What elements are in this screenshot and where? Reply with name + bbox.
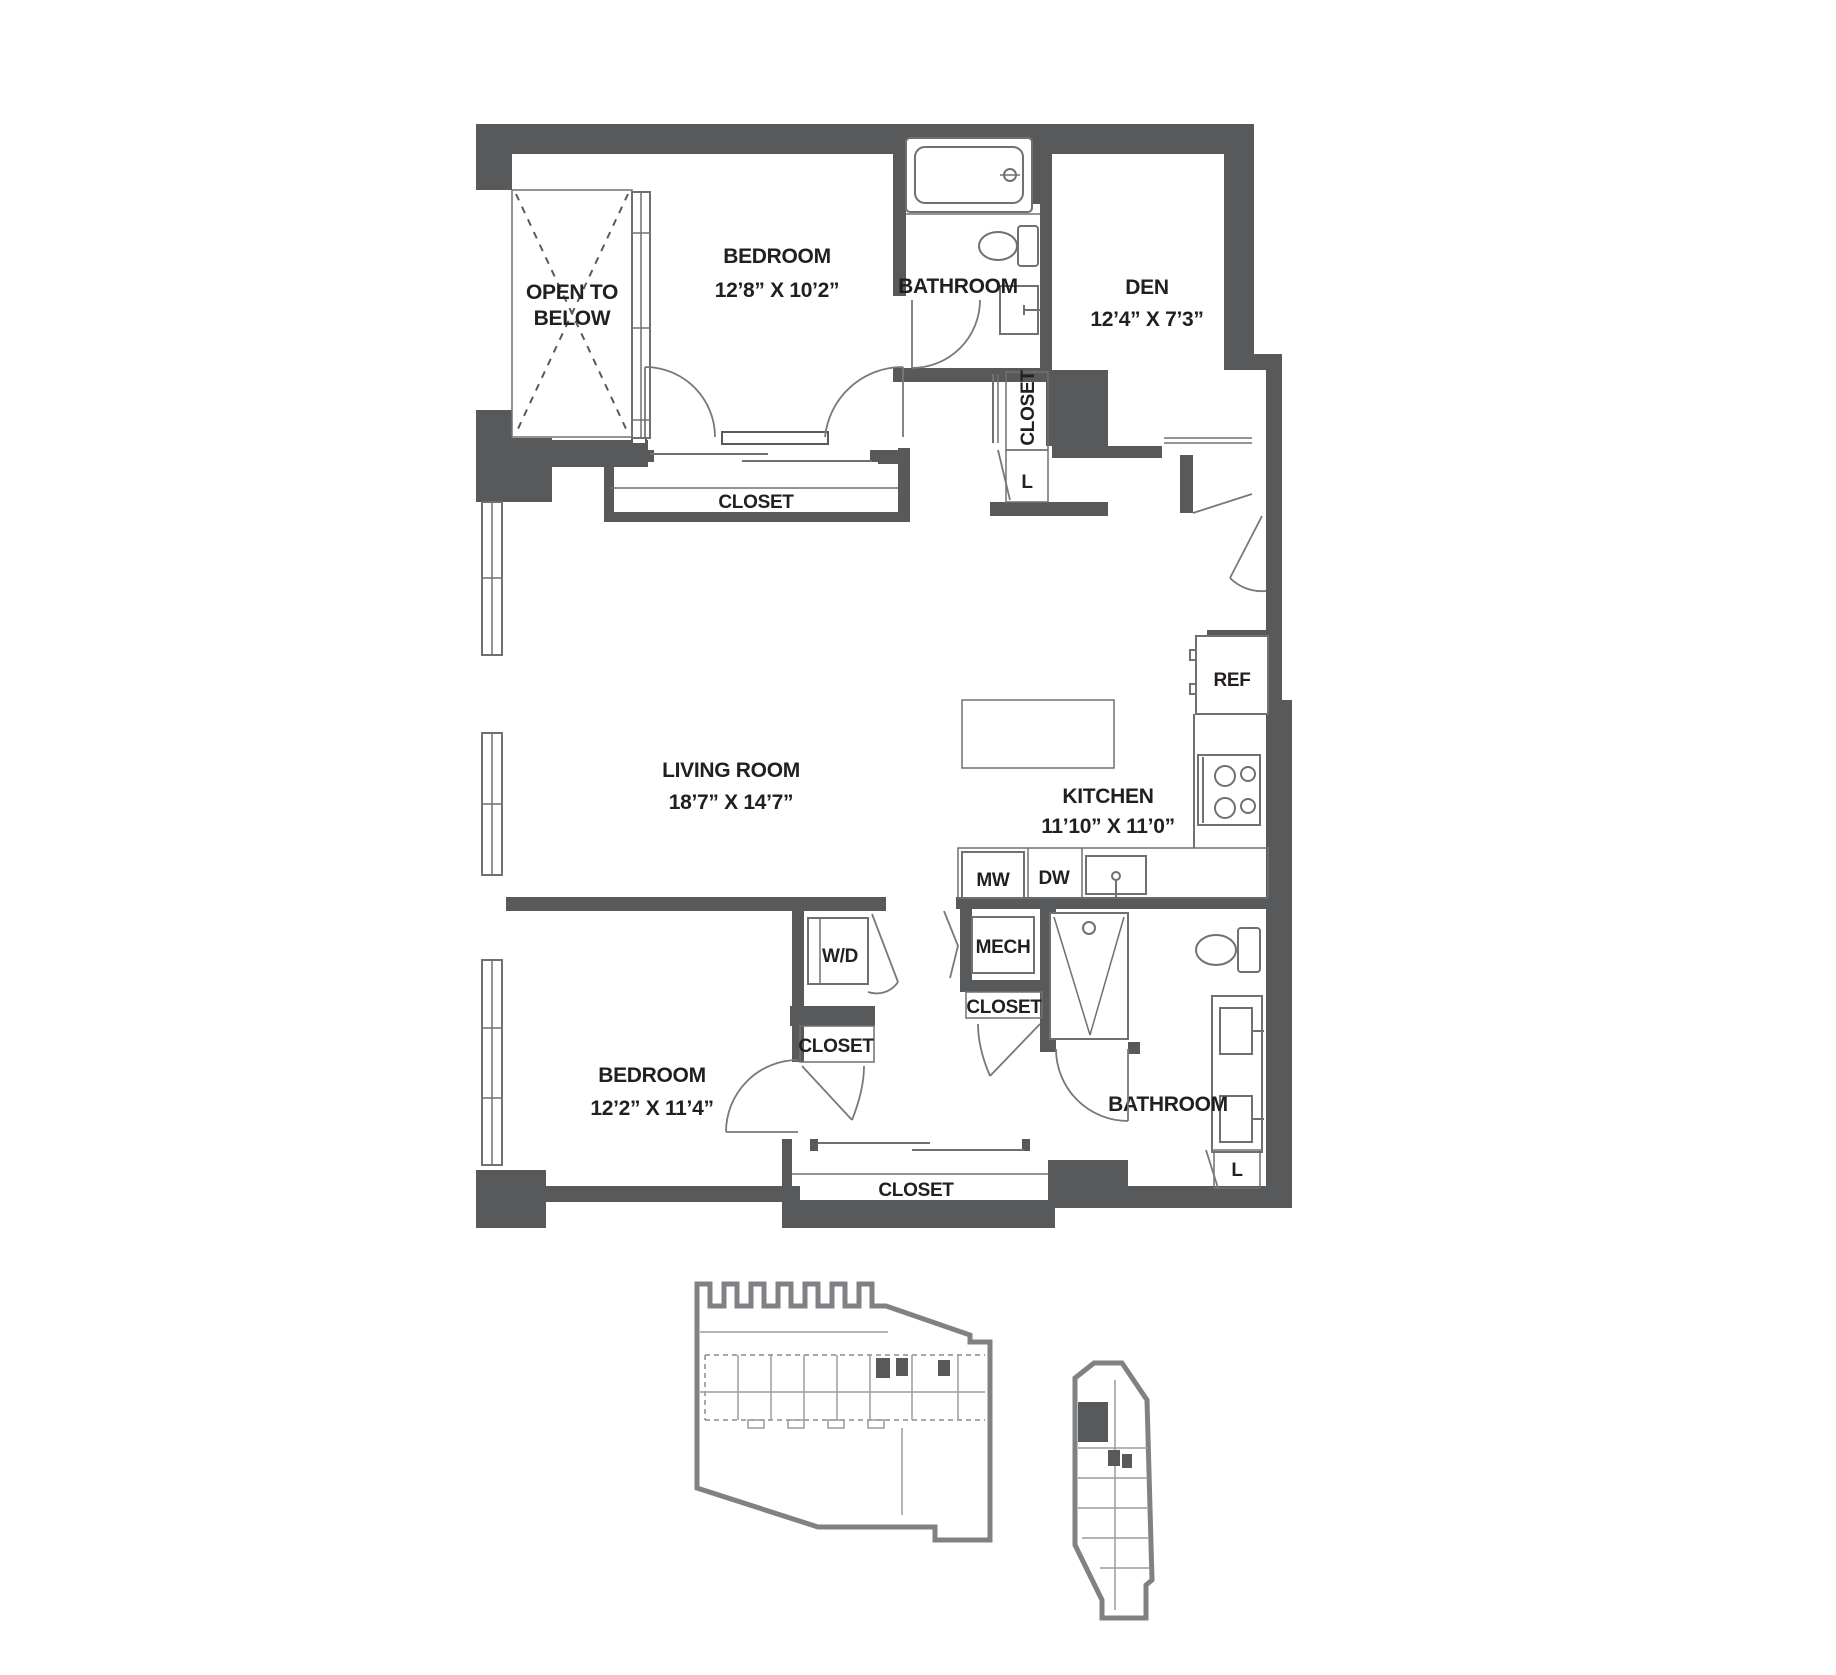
mech-closet: MECH <box>944 911 1034 978</box>
unit-plan: OPEN TO BELOW BEDROOM 12’8” X 10’2” CLOS… <box>476 124 1292 1228</box>
unit-highlight <box>1078 1402 1108 1442</box>
closet-by-mech: CLOSET <box>966 992 1042 1076</box>
kitchen-island <box>962 700 1114 768</box>
bedroom-1-dims: 12’8” X 10’2” <box>715 279 840 302</box>
toilet-2-icon <box>1196 928 1260 972</box>
bathroom-1-label: BATHROOM <box>898 275 1018 298</box>
key-plan-tower <box>1075 1363 1152 1618</box>
microwave-icon: MW <box>962 852 1024 898</box>
bedroom-1-label: BEDROOM <box>723 245 831 268</box>
closet-by-wd: CLOSET <box>798 1026 874 1120</box>
living-room: LIVING ROOM 18’7” X 14’7” <box>662 759 800 814</box>
mw-label: MW <box>976 870 1010 891</box>
vanity-2-icon <box>1212 996 1264 1152</box>
kitchen-dims: 11’10” X 11’0” <box>1041 815 1175 838</box>
living-room-dims: 18’7” X 14’7” <box>669 791 794 814</box>
dw-label: DW <box>1038 868 1069 889</box>
linen-2-label: L <box>1231 1160 1243 1181</box>
bathroom-2-label: BATHROOM <box>1108 1093 1228 1116</box>
open-to-below-label-line2: BELOW <box>534 307 611 330</box>
den-label: DEN <box>1125 276 1168 299</box>
kitchen-label: KITCHEN <box>1062 785 1153 808</box>
bedroom-2-dims: 12’2” X 11’4” <box>590 1097 713 1120</box>
wd-label: W/D <box>822 946 858 967</box>
open-to-below-label-line1: OPEN TO <box>526 281 618 304</box>
closet-bedroom-2-label: CLOSET <box>878 1180 954 1201</box>
bedroom-2: BEDROOM 12’2” X 11’4” <box>590 1060 798 1132</box>
thin-partitions <box>632 432 828 444</box>
stove-icon <box>1198 755 1260 825</box>
den-dims: 12’4” X 7’3” <box>1090 308 1203 331</box>
hall-linen-label: L <box>1021 472 1033 493</box>
closet-wd-label: CLOSET <box>798 1036 874 1057</box>
dishwasher-icon: DW <box>1028 848 1082 898</box>
bathroom-1: BATHROOM <box>898 138 1040 368</box>
closet-bedroom-1-label: CLOSET <box>718 492 794 513</box>
shower-icon <box>1050 913 1128 1039</box>
hall-closet-label: CLOSET <box>1018 370 1039 446</box>
key-plan-building <box>697 1284 990 1540</box>
linen-2-closet: L <box>1206 1150 1260 1188</box>
refrigerator-icon: REF <box>1190 636 1268 714</box>
ref-label: REF <box>1213 670 1250 691</box>
bathroom-2: BATHROOM L <box>1050 913 1264 1188</box>
closet-bedroom-2: CLOSET <box>792 1143 1048 1201</box>
closet-mech-label: CLOSET <box>966 997 1042 1018</box>
bedroom-1: BEDROOM 12’8” X 10’2” <box>645 245 903 437</box>
toilet-1-icon <box>979 226 1038 266</box>
floor-plan-svg: OPEN TO BELOW BEDROOM 12’8” X 10’2” CLOS… <box>0 0 1836 1675</box>
mech-label: MECH <box>976 937 1031 958</box>
entry-doors <box>1193 494 1266 591</box>
floor-plan-page: OPEN TO BELOW BEDROOM 12’8” X 10’2” CLOS… <box>0 0 1836 1675</box>
living-room-label: LIVING ROOM <box>662 759 800 782</box>
kitchen-sink-icon <box>1086 856 1146 897</box>
closet-bedroom-1: CLOSET <box>610 454 898 513</box>
window-wall <box>482 192 650 1165</box>
bedroom-2-label: BEDROOM <box>598 1064 706 1087</box>
washer-dryer-icon: W/D <box>808 918 868 984</box>
kitchen: KITCHEN 11’10” X 11’0” REF MW <box>958 636 1268 898</box>
hall-closet: CLOSET L <box>993 370 1048 502</box>
open-to-below-area: OPEN TO BELOW <box>512 190 632 437</box>
